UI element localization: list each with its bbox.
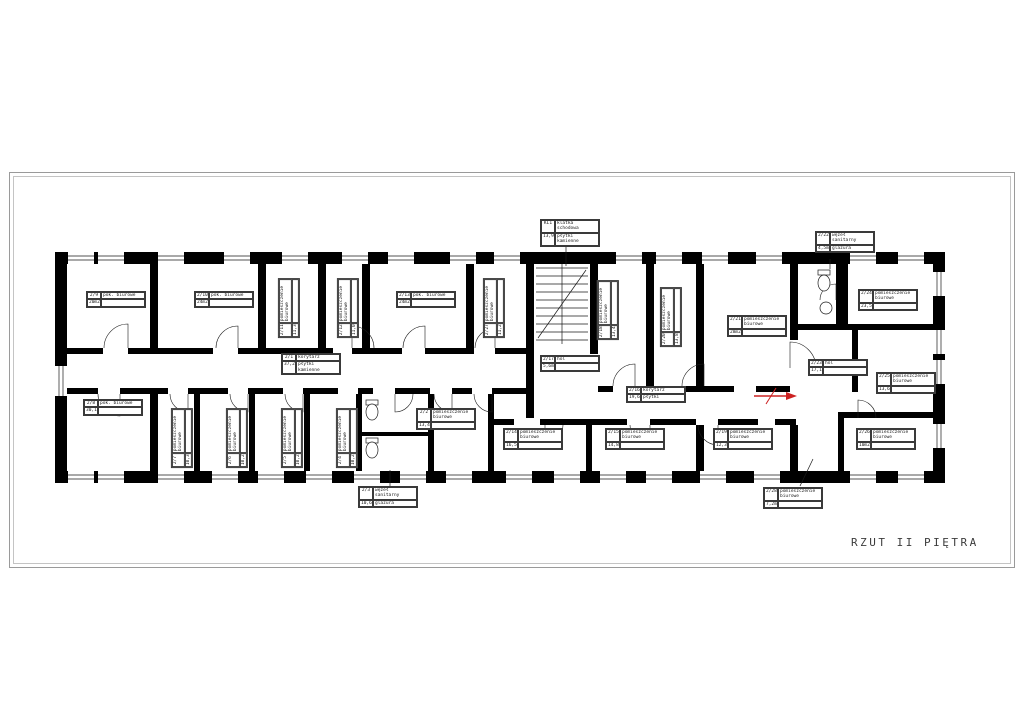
room-area: 19,6m2 bbox=[627, 394, 641, 401]
room-name: pomieszczenie biurowe bbox=[518, 429, 562, 442]
room-finish: płytki kamienne bbox=[296, 361, 340, 374]
room-finish bbox=[873, 303, 917, 310]
room-name: węzeł sanitarny bbox=[373, 487, 417, 500]
room-name: korytarz bbox=[641, 387, 685, 394]
room-name: pok. biurowe bbox=[411, 292, 455, 299]
room-id: 2/24 bbox=[859, 290, 873, 303]
room-area: 24m2 bbox=[195, 299, 209, 306]
room-area: 16,5m2 bbox=[504, 442, 518, 449]
room-label: 2/27pomieszczenie biurowe11,2m2 bbox=[483, 278, 505, 338]
room-label: 2/15pomieszczenie biurowe14,8m2 bbox=[605, 428, 665, 450]
room-area: 28m2 bbox=[728, 329, 742, 336]
room-name: pomieszczenie biurowe bbox=[279, 279, 292, 323]
room-finish bbox=[209, 299, 253, 306]
room-id: 2/20 bbox=[661, 332, 674, 346]
room-name: klatka schodowa bbox=[555, 220, 599, 233]
room-id: 2/4 bbox=[337, 453, 350, 467]
room-name: pok. biurowe bbox=[101, 292, 145, 299]
room-label: 2/28pomieszczenie biurowe7,2m2 bbox=[763, 487, 823, 509]
room-area: 17,1m2 bbox=[809, 367, 823, 374]
room-id: 2/12 bbox=[338, 323, 351, 337]
room-name: pomieszczenie biurowe bbox=[873, 290, 917, 303]
room-name: pomieszczenie biurowe bbox=[337, 409, 350, 453]
room-area: 13,92m2 bbox=[541, 233, 555, 246]
staircase bbox=[536, 264, 588, 344]
room-label: 2/17hol5,6m2 bbox=[540, 355, 600, 372]
room-label: 2/3węzeł sanitarny10,64m2glazura bbox=[358, 486, 418, 508]
room-name: hol bbox=[823, 360, 867, 367]
room-finish bbox=[411, 299, 455, 306]
room-name: pomieszczenie biurowe bbox=[778, 488, 822, 501]
room-id: 2/17 bbox=[541, 356, 555, 363]
room-area: 10,2m2 bbox=[295, 453, 302, 467]
room-finish bbox=[611, 281, 618, 325]
room-name: pomieszczenie biurowe bbox=[620, 429, 664, 442]
room-area: 11,2m2 bbox=[497, 323, 504, 337]
room-name: pomieszczenie biurowe bbox=[598, 281, 611, 325]
room-area: 20m2 bbox=[87, 299, 101, 306]
room-id: 2/3 bbox=[359, 487, 373, 500]
floor-plan-sheet: 2/1korytarz37,24m2płytki kamienne2/2pomi… bbox=[0, 0, 1024, 724]
room-area: 23,5m2 bbox=[859, 303, 873, 310]
room-id: 2/8 bbox=[84, 400, 98, 407]
room-label: 2/4pomieszczenie biurowe10,2m2 bbox=[336, 408, 358, 468]
room-label: 2/14pomieszczenie biurowe16,5m2 bbox=[503, 428, 563, 450]
room-area: 13,8m2 bbox=[674, 332, 681, 346]
room-area: 37,24m2 bbox=[282, 361, 296, 374]
room-name: korytarz bbox=[296, 354, 340, 361]
room-id: 2/10 bbox=[195, 292, 209, 299]
room-id: 2/2 bbox=[417, 409, 431, 422]
room-area: 13,4m2 bbox=[417, 422, 431, 429]
room-area: 12,3m2 bbox=[714, 442, 728, 449]
room-id: 2/1 bbox=[282, 354, 296, 361]
room-area: 10m2 bbox=[857, 442, 871, 449]
room-name: pomieszczenie biurowe bbox=[871, 429, 915, 442]
room-name: pomieszczenie biurowe bbox=[431, 409, 475, 422]
room-area: 13,4m2 bbox=[611, 325, 618, 339]
room-finish bbox=[292, 279, 299, 323]
room-area: 10,3m2 bbox=[185, 453, 192, 467]
room-name: pomieszczenie biurowe bbox=[172, 409, 185, 453]
room-name: pomieszczenie biurowe bbox=[282, 409, 295, 453]
room-name: pok. biurowe bbox=[98, 400, 142, 407]
plan-title: RZUT II PIĘTRA bbox=[851, 536, 979, 549]
room-finish bbox=[778, 501, 822, 508]
room-label: 2/21pomieszczenie biurowe28m2 bbox=[727, 315, 787, 337]
room-name: pok. biurowe bbox=[209, 292, 253, 299]
room-label: 2/24pomieszczenie biurowe23,5m2 bbox=[858, 289, 918, 311]
room-finish bbox=[295, 409, 302, 453]
room-id: 2/5 bbox=[282, 453, 295, 467]
room-finish: glazura bbox=[373, 500, 417, 507]
room-area: 24m2 bbox=[397, 299, 411, 306]
room-id: 2/21 bbox=[728, 316, 742, 329]
room-name: pomieszczenie biurowe bbox=[338, 279, 351, 323]
room-finish bbox=[620, 442, 664, 449]
room-area: 7,2m2 bbox=[764, 501, 778, 508]
room-label: 2/2pomieszczenie biurowe13,4m2 bbox=[416, 408, 476, 430]
room-id: 2/18 bbox=[598, 325, 611, 339]
room-finish bbox=[823, 367, 867, 374]
room-label: 2/19pomieszczenie biurowe12,3m2 bbox=[713, 428, 773, 450]
room-finish bbox=[101, 299, 145, 306]
room-finish bbox=[350, 409, 357, 453]
room-label: 2/6pomieszczenie biurowe10,2m2 bbox=[226, 408, 248, 468]
room-name: hol bbox=[555, 356, 599, 363]
room-area: 13,6m2 bbox=[877, 386, 891, 393]
room-id: 2/19 bbox=[714, 429, 728, 442]
room-label: 2/10pok. biurowe24m2 bbox=[194, 291, 254, 308]
room-name: pomieszczenie biurowe bbox=[227, 409, 240, 453]
room-area: 4,5m2 bbox=[816, 245, 830, 252]
room-id: 2/16 bbox=[627, 387, 641, 394]
room-finish bbox=[497, 279, 504, 323]
room-label: 2/26pomieszczenie biurowe10m2 bbox=[856, 428, 916, 450]
room-label: 2/5pomieszczenie biurowe10,2m2 bbox=[281, 408, 303, 468]
room-label: 2/18pomieszczenie biurowe13,4m2 bbox=[597, 280, 619, 340]
room-label: 2/20pomieszczenie biurowe13,8m2 bbox=[660, 287, 682, 347]
room-label: 2/9pok. biurowe20m2 bbox=[86, 291, 146, 308]
room-id: 2/15 bbox=[606, 429, 620, 442]
room-id: 2/25 bbox=[877, 373, 891, 386]
room-id: 2/22 bbox=[816, 232, 830, 245]
room-label: 2/25pomieszczenie biurowe13,6m2 bbox=[876, 372, 936, 394]
room-area: 14,8m2 bbox=[606, 442, 620, 449]
room-area: 11,3m2 bbox=[292, 323, 299, 337]
room-label: 2/23hol17,1m2 bbox=[808, 359, 868, 376]
room-area: 10,2m2 bbox=[240, 453, 247, 467]
room-finish: płytki bbox=[641, 394, 685, 401]
room-id: 2/13 bbox=[397, 292, 411, 299]
floor-plan-drawing bbox=[0, 0, 1024, 724]
room-label: 2/7pomieszczenie biurowe10,3m2 bbox=[171, 408, 193, 468]
room-label: 2/22węzeł sanitarny4,5m2glazura bbox=[815, 231, 875, 253]
room-label: KL1klatka schodowa13,92m2płytki kamienne bbox=[540, 219, 600, 247]
room-label: 2/13pok. biurowe24m2 bbox=[396, 291, 456, 308]
room-area: 30,1m2 bbox=[84, 407, 98, 414]
room-finish bbox=[351, 279, 358, 323]
room-finish: glazura bbox=[830, 245, 874, 252]
room-id: KL1 bbox=[541, 220, 555, 233]
room-id: 2/23 bbox=[809, 360, 823, 367]
room-id: 2/11 bbox=[279, 323, 292, 337]
room-finish bbox=[891, 386, 935, 393]
room-area: 10,2m2 bbox=[350, 453, 357, 467]
room-id: 2/28 bbox=[764, 488, 778, 501]
room-finish bbox=[431, 422, 475, 429]
room-label: 2/11pomieszczenie biurowe11,3m2 bbox=[278, 278, 300, 338]
room-finish: płytki kamienne bbox=[555, 233, 599, 246]
room-id: 2/26 bbox=[857, 429, 871, 442]
room-area: 5,6m2 bbox=[541, 363, 555, 370]
room-label: 2/12pomieszczenie biurowe11,0m2 bbox=[337, 278, 359, 338]
room-finish bbox=[742, 329, 786, 336]
room-id: 2/6 bbox=[227, 453, 240, 467]
room-id: 2/7 bbox=[172, 453, 185, 467]
room-name: węzeł sanitarny bbox=[830, 232, 874, 245]
room-name: pomieszczenie biurowe bbox=[742, 316, 786, 329]
room-finish bbox=[185, 409, 192, 453]
room-finish bbox=[518, 442, 562, 449]
room-area: 10,64m2 bbox=[359, 500, 373, 507]
room-name: pomieszczenie biurowe bbox=[728, 429, 772, 442]
room-id: 2/9 bbox=[87, 292, 101, 299]
room-name: pomieszczenie biurowe bbox=[661, 288, 674, 332]
room-finish bbox=[555, 363, 599, 370]
room-name: pomieszczenie biurowe bbox=[891, 373, 935, 386]
room-finish bbox=[98, 407, 142, 414]
room-finish bbox=[728, 442, 772, 449]
room-id: 2/14 bbox=[504, 429, 518, 442]
room-area: 11,0m2 bbox=[351, 323, 358, 337]
room-finish bbox=[674, 288, 681, 332]
room-name: pomieszczenie biurowe bbox=[484, 279, 497, 323]
room-label: 2/8pok. biurowe30,1m2 bbox=[83, 399, 143, 416]
room-finish bbox=[240, 409, 247, 453]
room-id: 2/27 bbox=[484, 323, 497, 337]
room-finish bbox=[871, 442, 915, 449]
room-label: 2/16korytarz19,6m2płytki bbox=[626, 386, 686, 403]
room-label: 2/1korytarz37,24m2płytki kamienne bbox=[281, 353, 341, 375]
